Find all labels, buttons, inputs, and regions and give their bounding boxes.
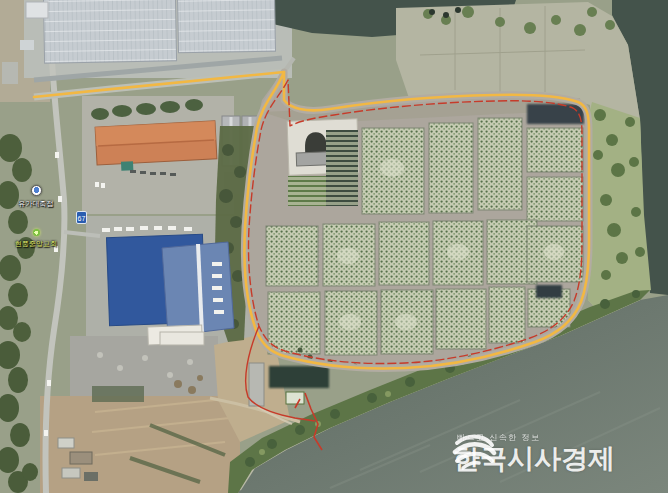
long-building-sw <box>249 363 264 406</box>
road-number-badge: 67 <box>76 211 87 224</box>
satellite-image: 유가대축점 현풍중앙교회 67 빠르고 신속한 정보 한국시사경제 <box>0 0 668 493</box>
planting-rows-green <box>288 176 326 206</box>
censored-building-1 <box>527 104 584 124</box>
censored-building-3 <box>269 366 329 388</box>
aerial-scene <box>0 0 668 493</box>
censored-building-2 <box>536 285 562 298</box>
watermark-tagline: 빠르고 신속한 정보 <box>457 432 615 443</box>
shed-sw <box>286 392 304 404</box>
planting-rows-dark <box>326 130 358 206</box>
watermark-logo: 빠르고 신속한 정보 한국시사경제 <box>449 426 668 474</box>
